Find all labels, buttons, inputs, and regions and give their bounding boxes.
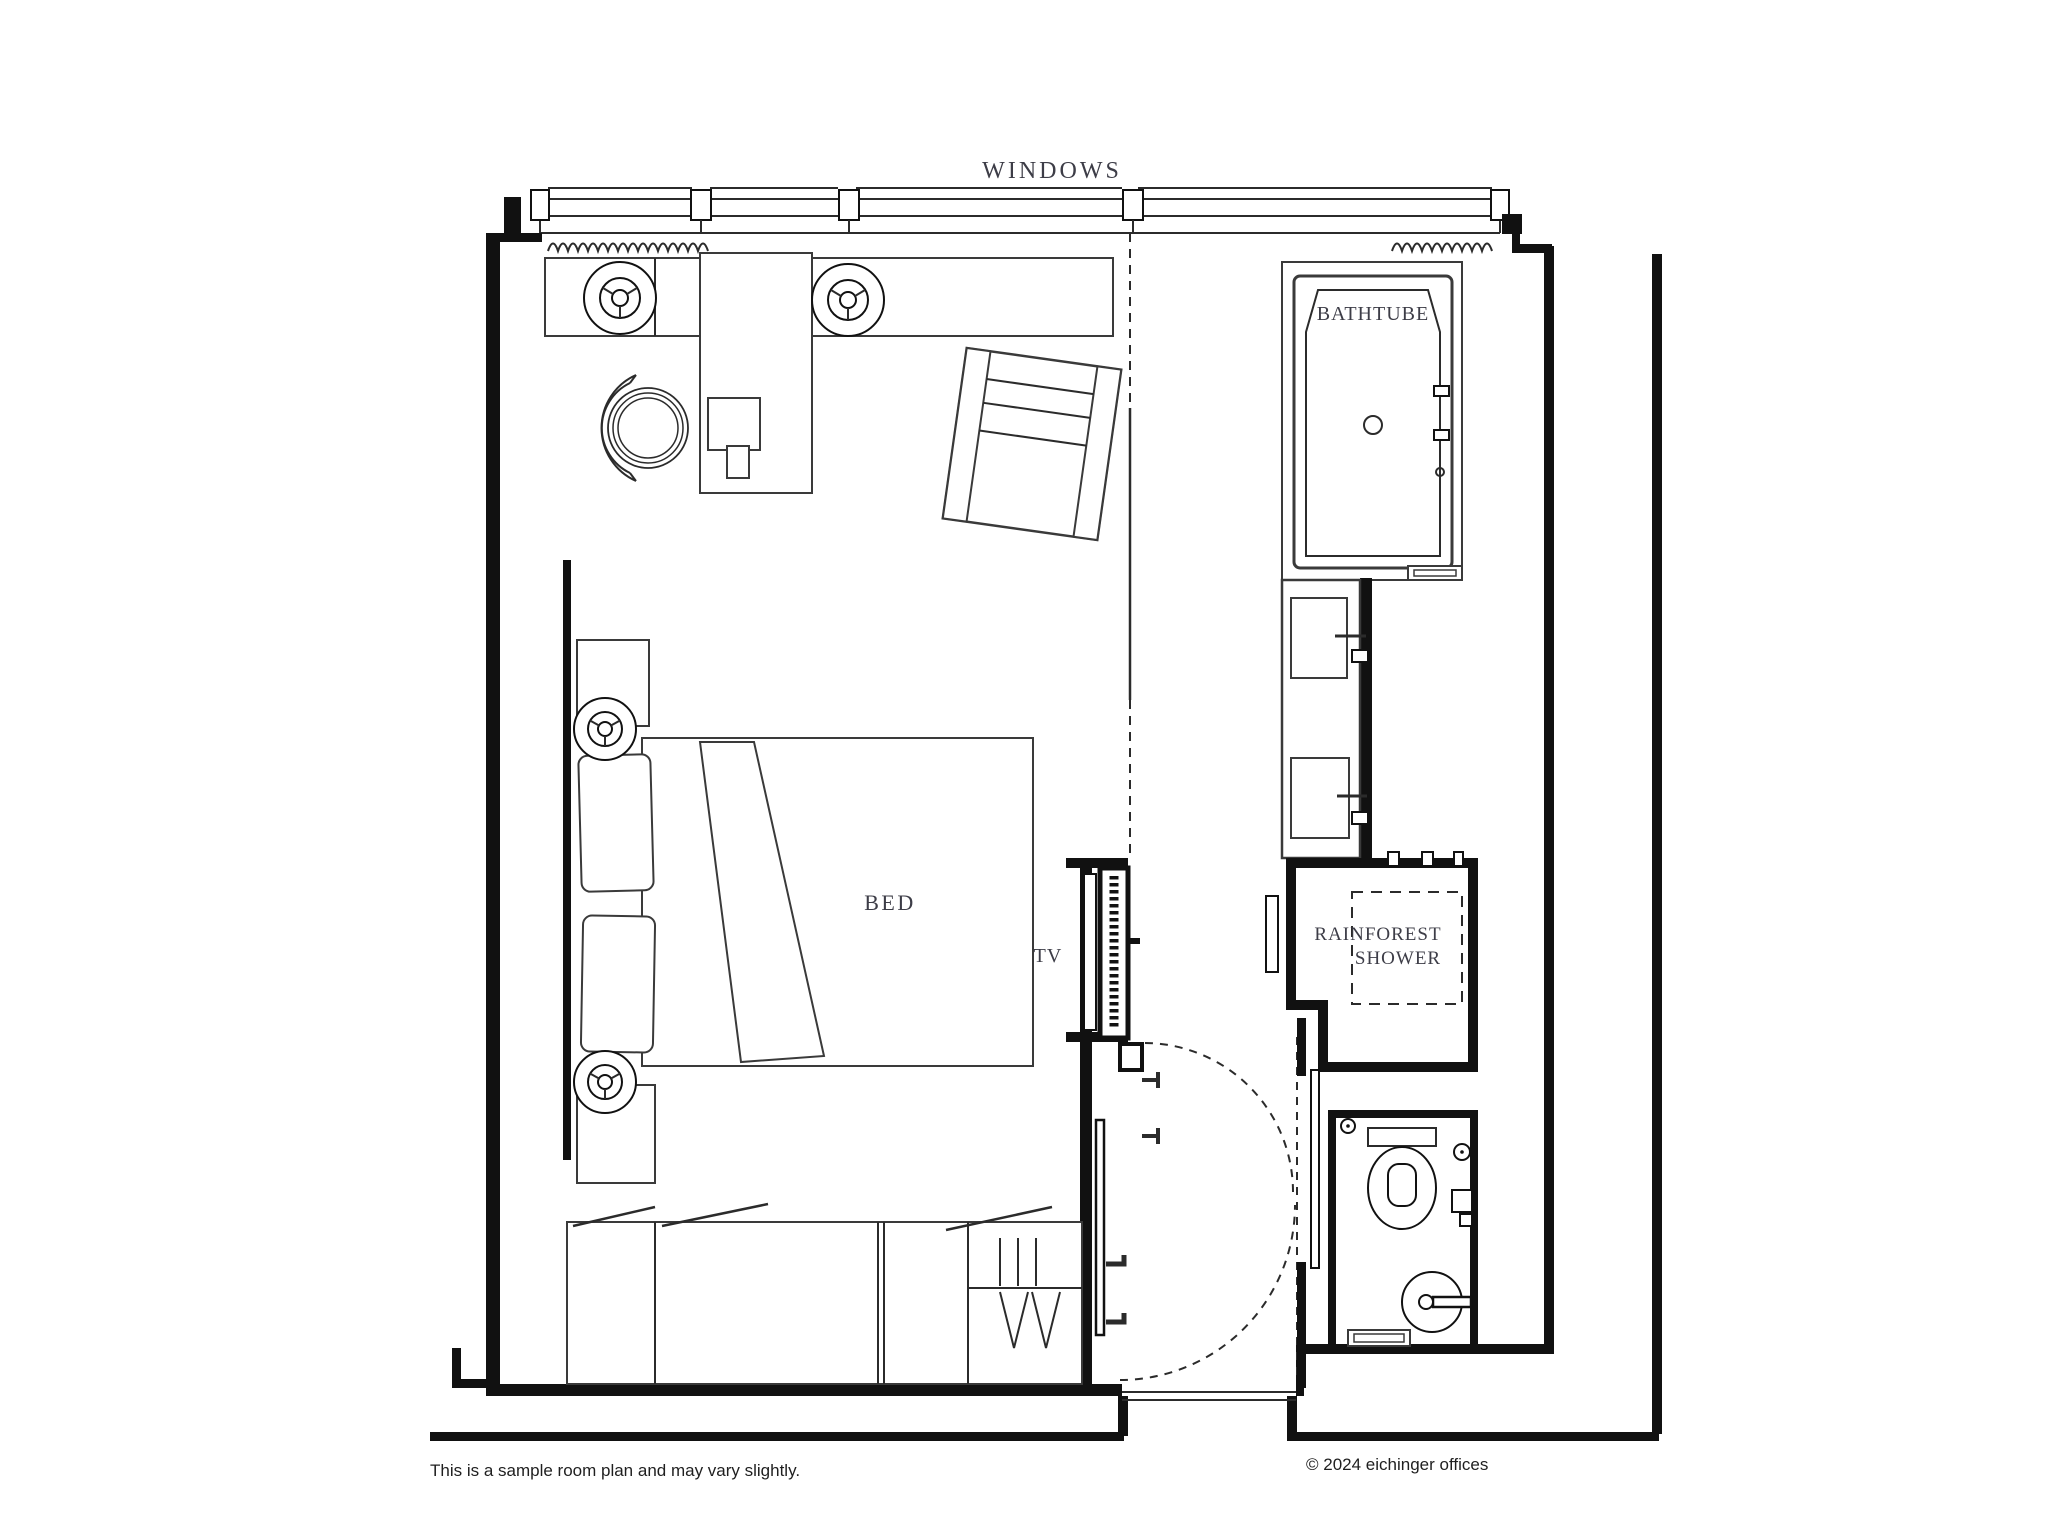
towel-bar	[1266, 896, 1278, 972]
wall-right	[1544, 246, 1554, 1354]
window-band	[531, 188, 1509, 233]
window-mullion	[531, 190, 549, 220]
flush-panel-small	[1460, 1214, 1472, 1226]
wall-context-right	[1652, 254, 1662, 1434]
vanity	[1282, 578, 1372, 862]
desk-chair	[602, 375, 688, 481]
wall-vestibule-left	[1118, 1396, 1128, 1436]
ground-line	[1287, 1432, 1659, 1441]
toilet-room	[1328, 1110, 1478, 1350]
disclaimer-text: This is a sample room plan and may vary …	[430, 1461, 800, 1480]
wall-left	[486, 233, 500, 1390]
bathtube-label: BATHTUBE	[1317, 303, 1429, 325]
bathtub-step	[1414, 570, 1456, 576]
bathtub-tap	[1434, 386, 1449, 396]
door-stop	[1142, 1128, 1158, 1144]
tv-label: TV	[1034, 945, 1063, 967]
flush-panel	[1452, 1190, 1472, 1212]
floor-plan-page: WINDOWS	[0, 0, 2048, 1536]
door-swing-arc	[1145, 1043, 1293, 1192]
ceiling-fan-icon	[574, 1051, 636, 1113]
shower-head-mark	[1422, 852, 1433, 866]
corner-basin	[1402, 1272, 1471, 1332]
bed-mattress	[642, 738, 1033, 1066]
tv-knob	[1128, 938, 1140, 944]
toilet-niche-inner	[1354, 1334, 1404, 1342]
sink-control	[1352, 812, 1368, 824]
window-mullion	[839, 190, 859, 220]
door-hinge-mark	[1106, 1255, 1124, 1264]
shower-head-mark	[1454, 852, 1463, 866]
armchair	[943, 348, 1121, 540]
radiator-left	[548, 244, 708, 252]
wall-vestibule-right	[1287, 1396, 1297, 1436]
copyright-text: © 2024 eichinger offices	[1306, 1455, 1488, 1474]
wardrobe	[567, 1204, 1082, 1384]
radiator-right	[1392, 244, 1492, 252]
door-jamb	[1120, 1044, 1142, 1070]
entry	[1096, 1037, 1297, 1400]
wall-bottom	[486, 1384, 1122, 1396]
toilet-sliding-door	[1297, 1018, 1319, 1388]
bathtub-tap	[1434, 430, 1449, 440]
tv-unit	[1066, 858, 1140, 1042]
floor-plan: WINDOWS	[0, 0, 2048, 1536]
rainforest-shower-label-line2: SHOWER	[1355, 948, 1441, 969]
wall-topleft-step	[504, 197, 521, 235]
door-pivot-dot	[1346, 1124, 1350, 1128]
entry-door-leaf	[1096, 1120, 1104, 1335]
window-mullion	[691, 190, 711, 220]
sink-control	[1352, 650, 1368, 662]
toilet	[1368, 1128, 1436, 1229]
ceiling-fan-icon	[584, 262, 656, 334]
ceiling-fan-icon	[812, 264, 884, 336]
desk	[700, 253, 812, 493]
ground-line	[430, 1432, 1124, 1441]
door-swing-arc	[1120, 1205, 1295, 1380]
vanity-sink	[1291, 598, 1347, 678]
pillow	[578, 754, 654, 892]
door-hinge-mark	[1106, 1313, 1124, 1322]
tv-screen	[1084, 874, 1096, 1030]
window-mullion	[1123, 190, 1143, 220]
bed-label: BED	[864, 890, 916, 915]
windows-label: WINDOWS	[982, 158, 1122, 184]
ceiling-fan-icon	[574, 698, 636, 760]
pillow	[581, 915, 655, 1052]
headboard-panel	[563, 560, 571, 1160]
shower-head-mark	[1388, 852, 1399, 866]
rainforest-shower-label-line1: RAINFOREST	[1314, 924, 1441, 945]
wall-topright-step	[1502, 214, 1522, 234]
vanity-sink	[1291, 758, 1349, 838]
toilet-paper-holder-dot	[1460, 1150, 1464, 1154]
door-stop	[1142, 1072, 1158, 1088]
